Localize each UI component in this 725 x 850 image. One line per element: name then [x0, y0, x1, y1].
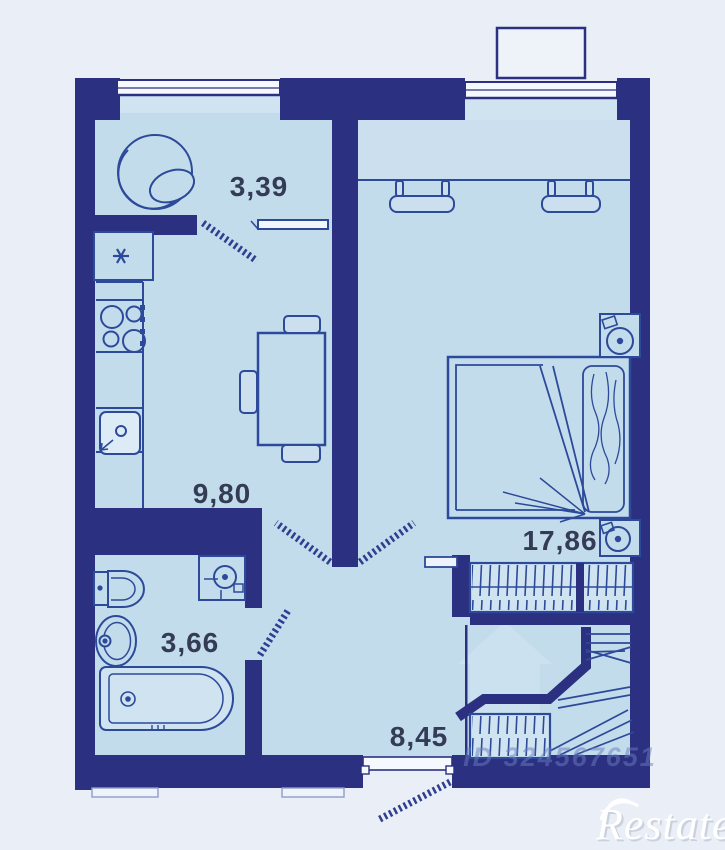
bathtub-icon	[100, 667, 233, 730]
brand-text: Restate	[595, 800, 725, 849]
floor-plan-svg: 3,39 9,80 17,86 3,66 8,45 ID 324567651 R…	[0, 0, 725, 850]
wardrobe-icon	[470, 563, 633, 612]
fridge-icon	[94, 232, 153, 280]
area-label-kitchen: 9,80	[193, 478, 252, 509]
kitchen-sink-icon	[100, 412, 140, 454]
window-balcony-room	[117, 80, 280, 95]
toilet-icon	[94, 571, 144, 607]
area-label-bathroom: 3,66	[161, 627, 220, 658]
exterior-duct-box	[497, 28, 585, 78]
pass-through-shelf	[251, 220, 328, 229]
window-bedroom	[465, 82, 617, 98]
listing-id-watermark: ID 324567651	[463, 742, 657, 772]
nightstand-icon	[600, 314, 640, 357]
floorplan-image: 3,39 9,80 17,86 3,66 8,45 ID 324567651 R…	[0, 0, 725, 850]
area-label-bedroom: 17,86	[522, 525, 597, 556]
brand-logo: Restate Restate	[595, 800, 725, 850]
washing-machine-icon	[199, 556, 245, 600]
nightstand-icon	[600, 520, 640, 556]
door-sill	[425, 557, 457, 567]
area-label-hallway: 8,45	[390, 721, 449, 752]
bed-icon	[448, 357, 630, 522]
area-label-balcony-room: 3,39	[230, 171, 289, 202]
